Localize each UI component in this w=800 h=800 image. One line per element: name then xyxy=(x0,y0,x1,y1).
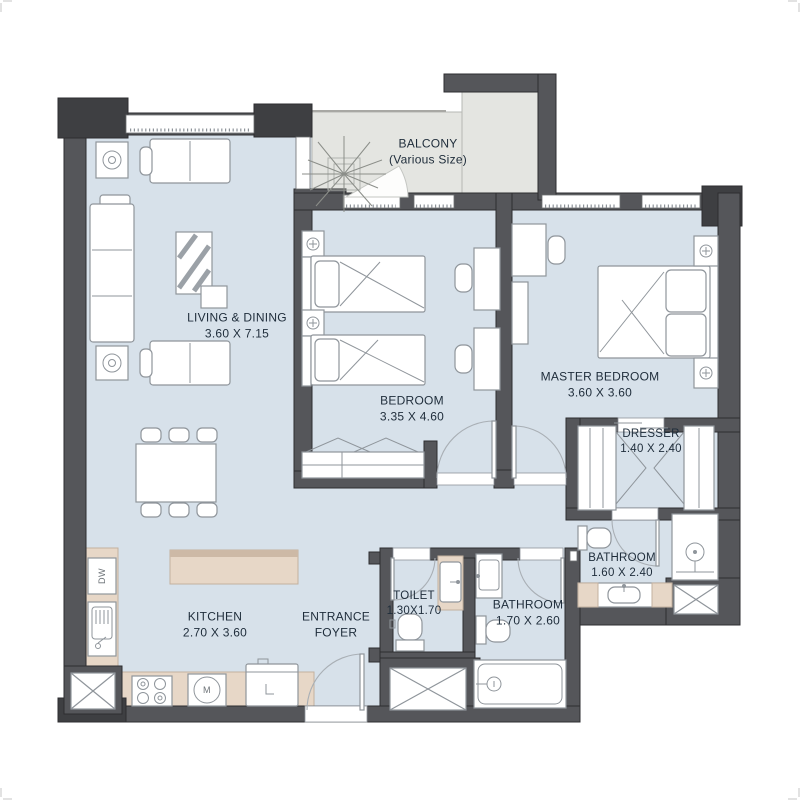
nightstand xyxy=(694,236,718,266)
shower xyxy=(672,514,718,580)
balcony-right-wall xyxy=(538,74,556,200)
bath-sink xyxy=(476,554,502,598)
wardrobe-left xyxy=(578,426,616,510)
bedroom-door-leaf xyxy=(492,421,496,478)
kitchen-label: KITCHEN 2.70 X 3.60 xyxy=(183,609,247,640)
toilet-fixture xyxy=(578,526,611,550)
toilet-bath-divider xyxy=(463,558,475,656)
washer-tag: M xyxy=(196,683,218,697)
corner-column-top-left xyxy=(58,98,128,138)
twin-bed-2 xyxy=(302,335,425,386)
balcony-name: BALCONY xyxy=(389,136,467,152)
left-outer-wall xyxy=(64,112,86,722)
side-table-lamp-2 xyxy=(96,346,128,380)
nightstand xyxy=(302,310,324,336)
loveseat-bottom xyxy=(140,341,230,385)
living-balcony-window xyxy=(296,137,310,189)
living-room-label: LIVING & DINING 3.60 X 7.15 xyxy=(187,310,287,341)
kitchen-sink xyxy=(88,602,116,656)
master-bathroom-label: BATHROOM 1.60 X 2.40 xyxy=(588,551,656,581)
vanity-sink xyxy=(578,583,672,607)
side-table-lamp xyxy=(96,142,128,178)
entrance-door-leaf xyxy=(360,654,364,710)
nightstand xyxy=(694,358,718,388)
twin-bed-1 xyxy=(302,256,425,312)
bathtub xyxy=(474,660,566,708)
master-bedroom-label: MASTER BEDROOM 3.60 X 3.60 xyxy=(541,369,660,400)
double-bed xyxy=(598,262,718,362)
entrance-opening xyxy=(305,706,367,722)
refrigerator xyxy=(246,659,298,706)
floor-plan-page: BALCONY (Various Size) LIVING & DINING 3… xyxy=(0,0,800,800)
bedroom-label: BEDROOM 3.35 X 4.60 xyxy=(380,393,444,424)
sofa-left xyxy=(90,195,134,342)
toilet-label: TOILET 1.30X1.70 xyxy=(387,589,442,619)
balcony-label: BALCONY (Various Size) xyxy=(389,136,467,167)
entrance-foyer-label: ENTRANCE FOYER xyxy=(302,609,370,640)
toilet-vanity xyxy=(438,556,463,610)
nightstand xyxy=(302,231,324,257)
dresser-label: DRESSER 1.40 X 2.40 xyxy=(620,427,682,457)
stove xyxy=(132,676,172,706)
wall-niche xyxy=(570,551,577,561)
bath-door-leaf xyxy=(561,558,564,603)
pier-living-balcony xyxy=(254,104,312,137)
bath-right-wall xyxy=(565,548,580,722)
master-door-leaf xyxy=(512,426,516,478)
balcony-note: (Various Size) xyxy=(389,152,467,168)
wardrobe-right xyxy=(684,426,714,510)
right-outer-wall xyxy=(718,193,740,625)
dining-table xyxy=(136,428,217,517)
bathroom-label: BATHROOM 1.70 X 2.60 xyxy=(493,597,563,628)
loveseat-top xyxy=(140,139,230,183)
dishwasher-tag: DW xyxy=(86,562,118,590)
master-bath-door-leaf xyxy=(656,520,659,566)
